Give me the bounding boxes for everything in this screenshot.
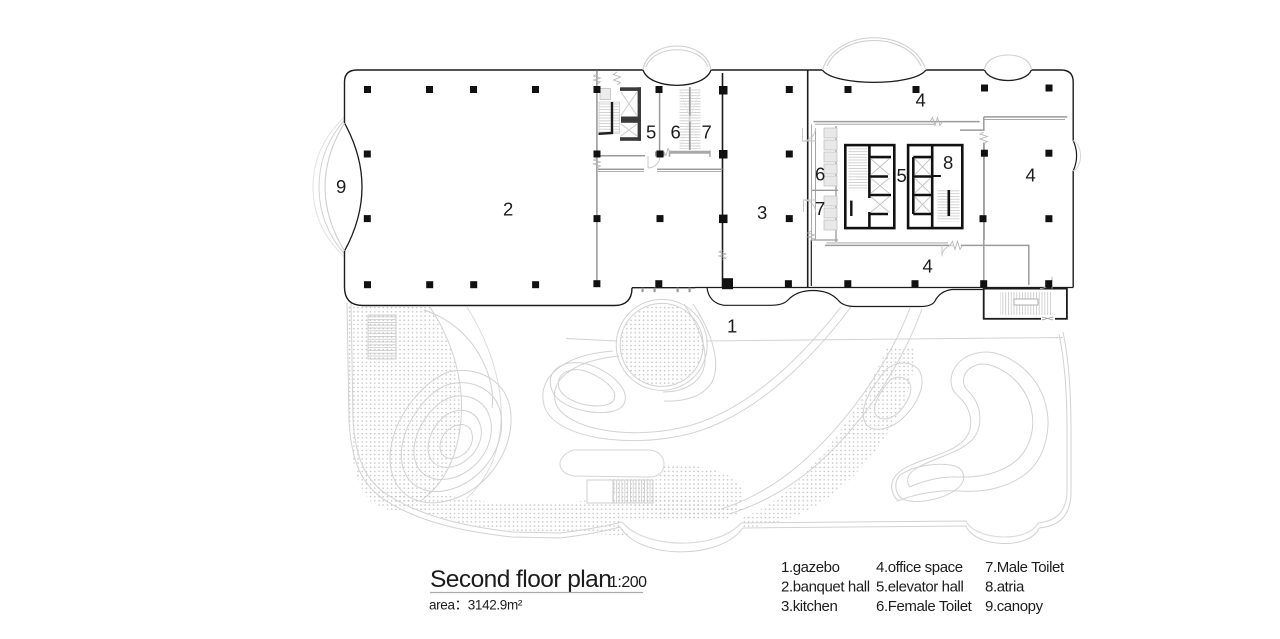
svg-text:1.gazebo: 1.gazebo (781, 559, 840, 576)
svg-text:5.elevator hall: 5.elevator hall (876, 579, 963, 596)
svg-text:7: 7 (815, 198, 825, 219)
svg-text:2.banquet hall: 2.banquet hall (781, 579, 870, 596)
svg-text:9: 9 (336, 176, 346, 197)
svg-text:3: 3 (757, 202, 767, 223)
svg-text:4: 4 (923, 256, 933, 277)
svg-text:4.office space: 4.office space (876, 559, 963, 576)
svg-text:1:200: 1:200 (609, 574, 647, 591)
svg-text:4: 4 (1026, 165, 1036, 186)
svg-text:6: 6 (815, 164, 825, 185)
svg-text:5: 5 (646, 122, 656, 143)
svg-text:8: 8 (943, 152, 953, 173)
svg-text:8.atria: 8.atria (985, 579, 1025, 596)
svg-text:5: 5 (897, 165, 907, 186)
svg-text:area：3142.9m²: area：3142.9m² (429, 598, 523, 613)
svg-text:9.canopy: 9.canopy (985, 598, 1044, 615)
svg-text:1: 1 (727, 316, 737, 337)
svg-text:2: 2 (503, 199, 513, 220)
svg-text:4: 4 (916, 90, 926, 111)
svg-text:Second floor plan: Second floor plan (430, 566, 611, 593)
svg-text:7: 7 (702, 122, 712, 143)
svg-text:3.kitchen: 3.kitchen (781, 598, 837, 615)
svg-text:6.Female Toilet: 6.Female Toilet (876, 598, 973, 615)
svg-text:7.Male Toilet: 7.Male Toilet (985, 559, 1065, 576)
svg-text:6: 6 (671, 122, 681, 143)
